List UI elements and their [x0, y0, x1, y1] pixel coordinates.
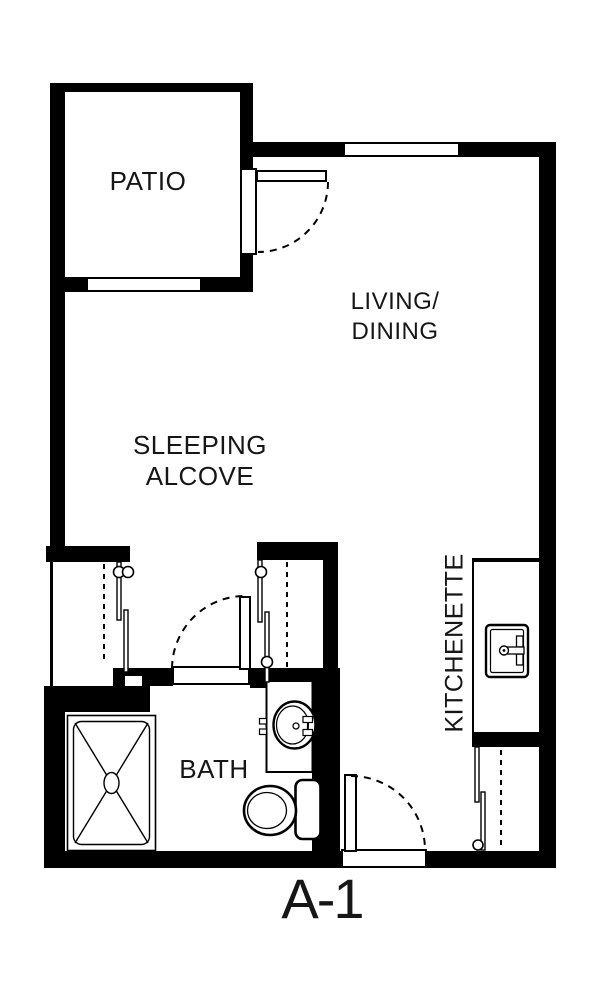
shower-drain	[104, 773, 119, 794]
fixtures-layer	[0, 0, 608, 998]
patio-door-swing-arc	[258, 182, 328, 252]
kitchen-sink-icon	[486, 625, 528, 677]
right-closet-sliding-doors	[256, 560, 288, 682]
room-label-patio: PATIO	[98, 166, 198, 197]
entry-closet-sliding-doors	[473, 747, 501, 850]
toilet-icon	[244, 780, 321, 839]
room-label-sleeping-alcove: SLEEPING ALCOVE	[120, 430, 280, 492]
room-label-living-line1: LIVING/	[320, 287, 470, 317]
room-label-sleeping-line1: SLEEPING	[120, 430, 280, 461]
floor-plan: PATIO LIVING/ DINING SLEEPING ALCOVE BAT…	[0, 0, 608, 998]
room-label-bath: BATH	[174, 754, 254, 785]
room-label-kitchenette: KITCHENETTE	[441, 563, 470, 733]
entry-door-swing-arc	[351, 776, 425, 850]
bath-door-swing-arc	[172, 596, 243, 668]
unit-label: A-1	[242, 866, 402, 931]
room-label-sleeping-line2: ALCOVE	[120, 461, 280, 492]
room-label-living-dining: LIVING/ DINING	[320, 287, 470, 347]
bathroom-sink-icon	[260, 681, 316, 772]
left-closet-sliding-doors	[104, 562, 134, 672]
shower-icon	[68, 716, 156, 851]
room-label-living-line2: DINING	[320, 317, 470, 347]
